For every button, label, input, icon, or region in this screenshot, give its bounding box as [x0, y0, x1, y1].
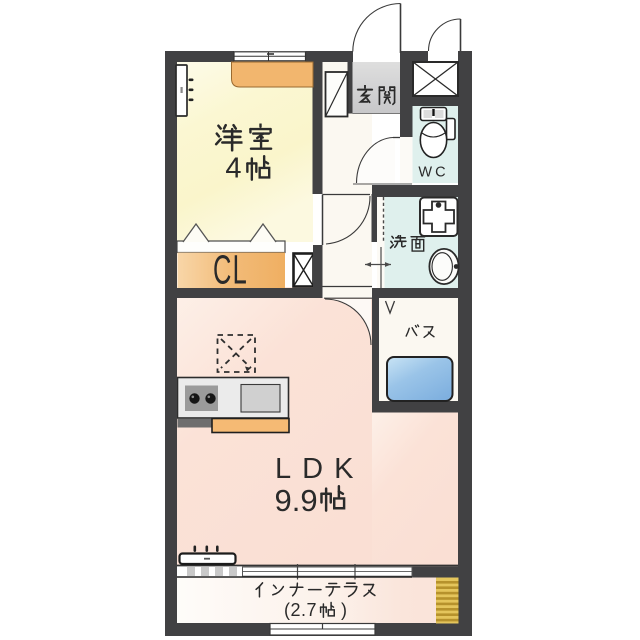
svg-text:4: 4 — [225, 153, 241, 185]
svg-text:CL: CL — [213, 247, 248, 293]
svg-text:): ) — [341, 600, 347, 620]
svg-text:WC: WC — [418, 165, 448, 181]
svg-text:(2.7: (2.7 — [284, 600, 317, 620]
svg-text:LDK: LDK — [275, 453, 364, 485]
svg-text:9.9: 9.9 — [275, 483, 318, 518]
